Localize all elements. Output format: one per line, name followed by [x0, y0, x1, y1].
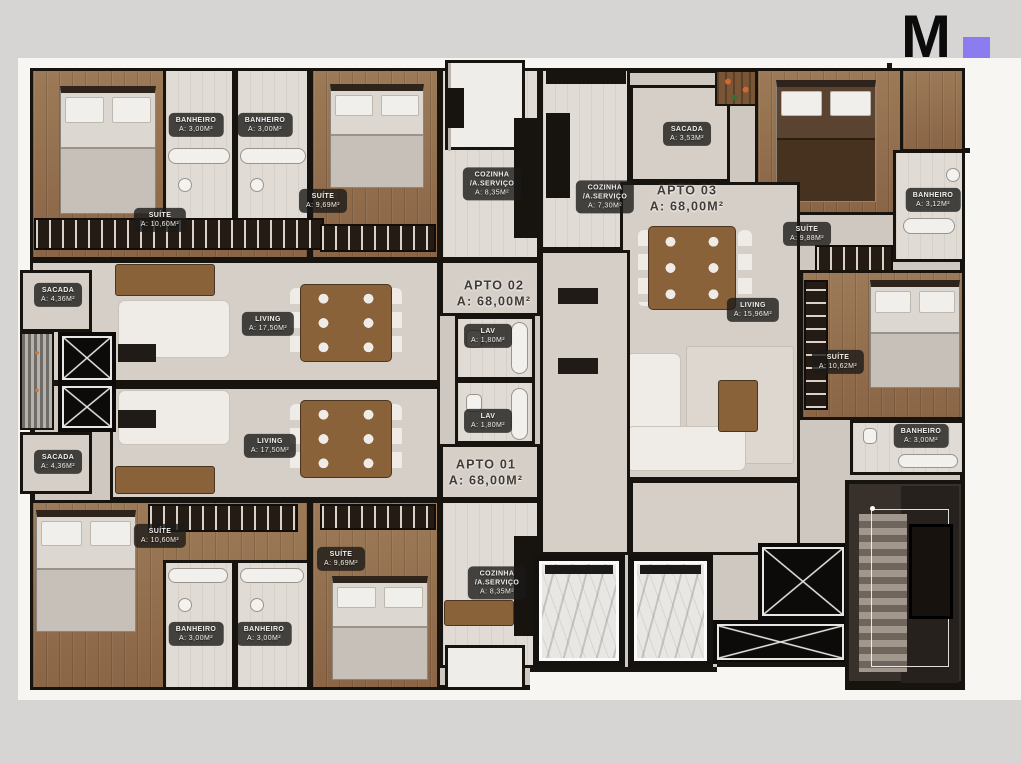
door-mat [118, 344, 156, 362]
room-label: LAVA: 1,80M² [464, 324, 512, 348]
sink [946, 168, 960, 182]
room-label: LIVINGA: 17,50M² [242, 312, 294, 336]
room-label: BANHEIROA: 3,00M² [237, 622, 292, 646]
bathtub [511, 322, 528, 374]
dining-table [648, 226, 736, 310]
room-label: SUÍTEA: 9,69M² [299, 189, 347, 213]
bed [60, 86, 156, 214]
bathtub [240, 148, 306, 164]
door-mat [558, 288, 598, 304]
stairs-start-dot [870, 506, 875, 511]
sink [250, 598, 264, 612]
kitchen-cabinet [444, 600, 514, 626]
room-label: LAVA: 1,80M² [464, 409, 512, 433]
wardrobe [320, 224, 436, 252]
room-label: BANHEIROA: 3,00M² [894, 424, 949, 448]
sofa [626, 426, 746, 471]
room-label: COZINHA /A.SERVIÇOA: 8,35M² [463, 167, 521, 200]
bed [332, 576, 428, 680]
brand-logo-m: M [901, 12, 949, 61]
room-label: SUÍTEA: 10,60M² [134, 208, 186, 232]
dining-chairs [738, 230, 752, 306]
room-label: SACADAA: 4,36M² [34, 450, 82, 474]
room-label: BANHEIROA: 3,00M² [169, 622, 224, 646]
closet-top-right [900, 68, 965, 152]
room-label: LIVINGA: 17,50M² [244, 434, 296, 458]
bathtub [240, 568, 304, 583]
dining-table [300, 284, 392, 362]
room-label: LIVINGA: 15,96M² [727, 298, 779, 322]
floor-plan-image: BANHEIROA: 3,00M² BANHEIROA: 3,00M² SUÍT… [18, 58, 1021, 700]
room-label: SUÍTEA: 9,69M² [317, 547, 365, 571]
room-label: BANHEIROA: 3,00M² [238, 113, 293, 137]
toilet [863, 428, 877, 444]
elevator-2 [628, 555, 713, 667]
corridor-right [630, 480, 800, 555]
wardrobe [815, 245, 893, 273]
page: { "logo": { "letter": "M", "accent_color… [0, 0, 1021, 763]
bathtub [168, 148, 230, 164]
technical-shaft [62, 386, 112, 428]
room-label: BANHEIROA: 3,12M² [906, 188, 961, 212]
bed [330, 84, 424, 188]
desk [115, 466, 215, 494]
room-label: SACADAA: 3,53M² [663, 122, 711, 146]
desk [115, 264, 215, 296]
apto-label: APTO 02A: 68,00M² [450, 275, 539, 312]
wardrobe [804, 280, 828, 410]
building-notch-bottom-2 [717, 662, 845, 692]
bathtub [511, 388, 528, 440]
room-label: SUÍTEA: 10,62M² [812, 350, 864, 374]
room-label: COZINHA /A.SERVIÇOA: 7,30M² [576, 180, 634, 213]
bathtub [168, 568, 228, 583]
door-mat [118, 410, 156, 428]
technical-shaft [717, 624, 844, 660]
building-notch-bottom [530, 667, 726, 692]
room-label: COZINHA /A.SERVIÇOA: 8,35M² [468, 566, 526, 599]
room-label: SACADAA: 4,36M² [34, 283, 82, 307]
kitchen-counter [546, 113, 570, 198]
bathtub [898, 454, 958, 468]
stairs [845, 480, 965, 685]
bathtub [903, 218, 955, 234]
room-label: BANHEIROA: 3,00M² [169, 113, 224, 137]
wardrobe [320, 504, 436, 530]
stairs-void [909, 524, 953, 619]
kitchen-counter [446, 88, 464, 128]
bed [36, 510, 136, 632]
elevator-1 [533, 555, 625, 667]
sink [178, 598, 192, 612]
elevator-lintel [545, 565, 613, 574]
door-mat [558, 358, 598, 374]
room-label: SUÍTEA: 9,88M² [783, 222, 831, 246]
kitchen-counter [546, 68, 626, 84]
sink [250, 178, 264, 192]
ac-condenser-rack [20, 332, 54, 430]
coffee-table [718, 380, 758, 432]
apto-label: APTO 01A: 68,00M² [442, 454, 531, 491]
room-label: SUÍTEA: 10,60M² [134, 524, 186, 548]
technical-shaft [62, 336, 112, 380]
dining-table [300, 400, 392, 478]
elevator-lintel [640, 565, 701, 574]
balcony-bottom-center [445, 645, 525, 690]
bathroom-top-left-1 [163, 68, 235, 225]
technical-shaft [762, 547, 844, 616]
bed [870, 280, 960, 388]
apto-label: APTO 03A: 68,00M² [643, 180, 732, 217]
sink [178, 178, 192, 192]
brand-accent-square [963, 37, 990, 58]
